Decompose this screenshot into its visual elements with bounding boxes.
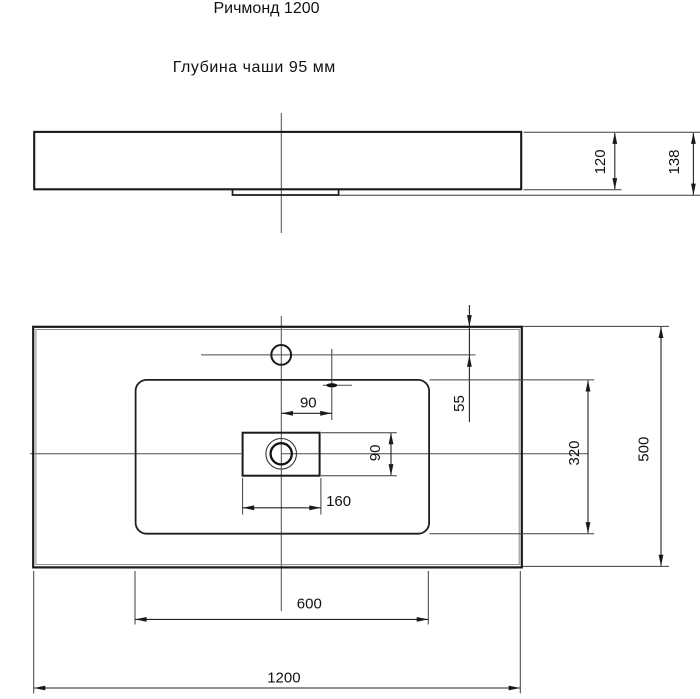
svg-text:500: 500 xyxy=(636,437,653,462)
svg-text:138: 138 xyxy=(666,149,683,174)
svg-text:Ричмонд 1200: Ричмонд 1200 xyxy=(213,0,319,17)
svg-text:Глубина чаши 95 мм: Глубина чаши 95 мм xyxy=(173,59,336,76)
svg-text:120: 120 xyxy=(592,149,609,174)
svg-text:1200: 1200 xyxy=(267,669,300,686)
svg-text:600: 600 xyxy=(297,596,322,613)
svg-text:55: 55 xyxy=(451,395,468,412)
svg-text:90: 90 xyxy=(300,395,317,412)
svg-text:90: 90 xyxy=(367,445,384,462)
svg-text:160: 160 xyxy=(326,493,351,510)
svg-text:320: 320 xyxy=(566,440,583,465)
